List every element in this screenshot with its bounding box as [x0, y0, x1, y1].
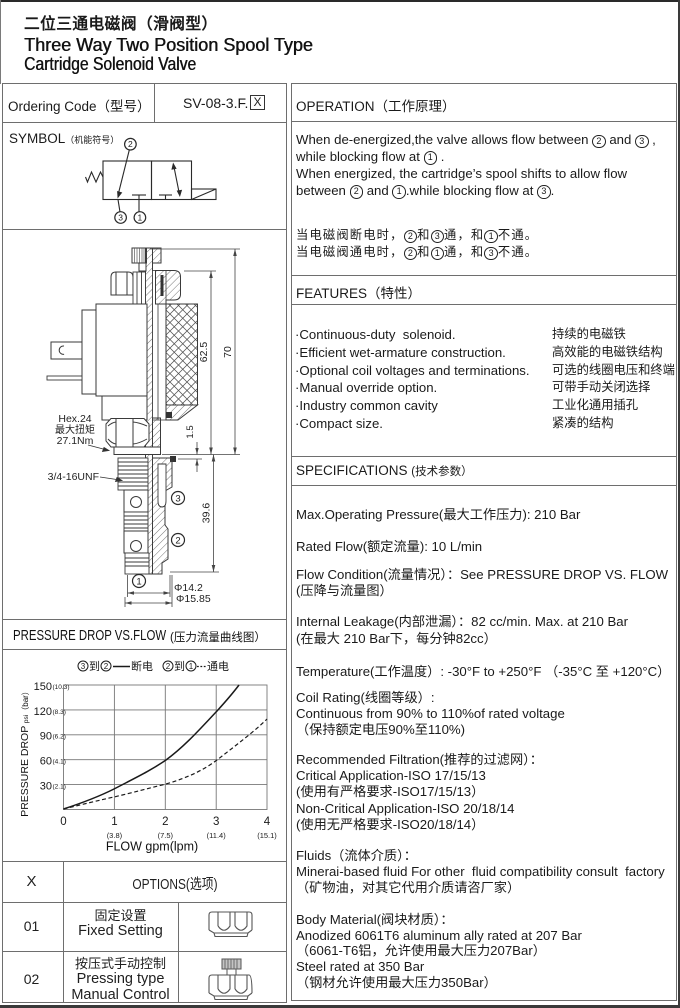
svg-text:到: 到 — [89, 660, 100, 673]
svg-text:PRESSURE DROP psi（bar）: PRESSURE DROP psi（bar） — [19, 687, 31, 817]
svg-text:2: 2 — [175, 536, 180, 547]
svg-text:Hex.24: Hex.24 — [58, 413, 91, 425]
svg-text:120: 120 — [34, 706, 52, 718]
svg-text:断电: 断电 — [131, 659, 153, 673]
svg-text:150: 150 — [34, 681, 52, 693]
svg-text:(2.1): (2.1) — [53, 784, 66, 791]
svg-text:62.5: 62.5 — [198, 342, 210, 363]
svg-text:(8.3): (8.3) — [53, 709, 66, 716]
svg-text:到: 到 — [174, 660, 185, 673]
svg-text:1: 1 — [111, 816, 117, 828]
svg-text:2: 2 — [162, 816, 168, 828]
svg-text:3: 3 — [118, 213, 123, 223]
svg-text:70: 70 — [222, 346, 234, 358]
svg-text:(6.2): (6.2) — [53, 734, 66, 741]
svg-text:90: 90 — [40, 731, 52, 743]
svg-text:2: 2 — [166, 662, 171, 671]
svg-text:(4.1): (4.1) — [53, 759, 66, 766]
svg-text:3: 3 — [81, 662, 86, 671]
svg-text:1: 1 — [189, 662, 194, 671]
svg-text:4: 4 — [264, 816, 271, 828]
svg-text:Φ15.85: Φ15.85 — [176, 593, 211, 605]
svg-text:(10.3): (10.3) — [53, 684, 70, 691]
svg-text:3: 3 — [175, 494, 180, 505]
svg-text:39.6: 39.6 — [201, 503, 213, 524]
svg-text:1: 1 — [138, 213, 143, 223]
svg-text:0: 0 — [60, 816, 66, 828]
svg-text:(11.4): (11.4) — [207, 831, 227, 840]
svg-text:(15.1): (15.1) — [257, 831, 277, 840]
svg-text:FLOW gpm(lpm): FLOW gpm(lpm) — [106, 840, 198, 854]
svg-text:2: 2 — [104, 662, 109, 671]
svg-text:通电: 通电 — [207, 660, 229, 673]
svg-text:1: 1 — [136, 577, 141, 588]
svg-text:1.5: 1.5 — [185, 425, 196, 438]
svg-text:60: 60 — [40, 756, 52, 768]
svg-text:3: 3 — [213, 816, 219, 828]
svg-text:3/4-16UNF: 3/4-16UNF — [48, 471, 99, 483]
svg-text:30: 30 — [40, 781, 52, 793]
svg-text:2: 2 — [128, 139, 133, 149]
